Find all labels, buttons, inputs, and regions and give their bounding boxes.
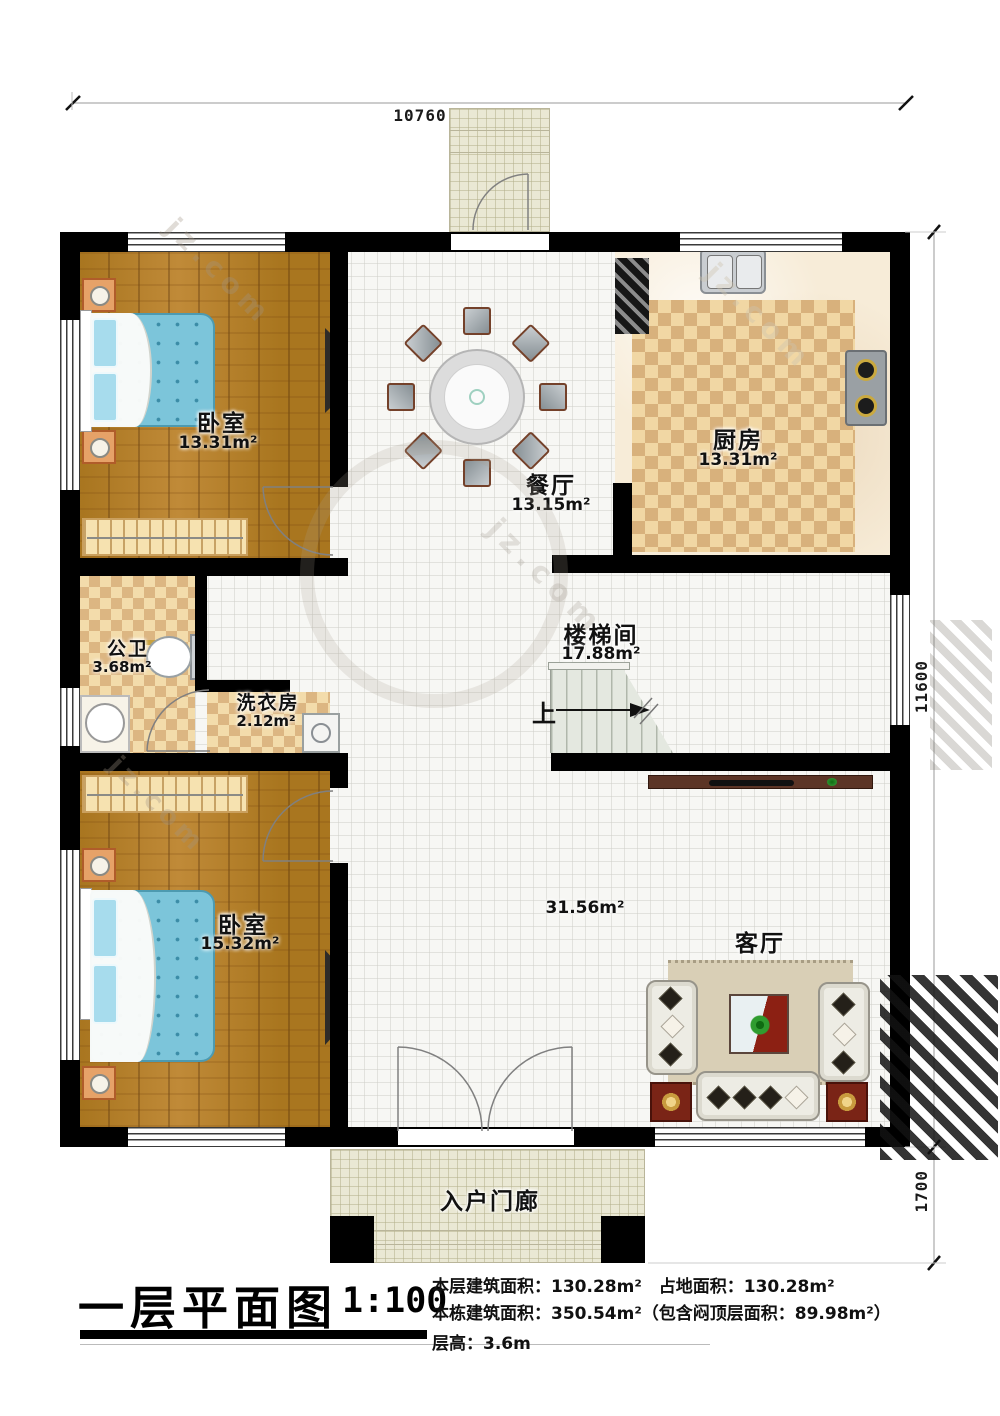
stair-up-label: 上 xyxy=(532,694,556,729)
stair-arrow-head xyxy=(630,703,650,717)
room-label-laundry: 洗衣房 xyxy=(236,688,299,715)
title-underline-thin xyxy=(80,1344,710,1345)
drawing-title: 一层平面图 xyxy=(78,1272,338,1338)
room-label-living: 客厅 xyxy=(735,924,785,958)
dim-porch-depth: 1700 xyxy=(912,1170,931,1213)
door-swing-bathroom xyxy=(147,690,210,751)
info-building-area: 本栋建筑面积：350.54m²（包含闷顶层面积：89.98m²） xyxy=(432,1299,891,1324)
dim-right-height: 11600 xyxy=(912,660,931,713)
door-swing-bedroom2 xyxy=(263,791,333,861)
room-area-bedroom1: 13.31m² xyxy=(179,433,258,453)
floor-plan-canvas: 卧室 13.31m² 餐厅 13.15m² 厨房 13.31m² 公卫 3.68… xyxy=(0,0,1000,1416)
door-swing-entrance-left xyxy=(398,1047,482,1131)
title-underline-thick xyxy=(80,1330,427,1339)
room-area-bathroom: 3.68m² xyxy=(92,658,151,676)
dim-top-width: 10760 xyxy=(393,106,446,125)
dim-ext-right xyxy=(648,232,946,1263)
room-area-living: 31.56m² xyxy=(546,898,625,918)
room-area-bedroom2: 15.32m² xyxy=(201,934,280,954)
room-area-kitchen: 13.31m² xyxy=(699,450,778,470)
door-swing-top-porch xyxy=(473,174,528,230)
info-floor-height: 层高：3.6m xyxy=(432,1329,531,1354)
room-area-stairhall: 17.88m² xyxy=(562,644,641,664)
door-swing-bedroom1 xyxy=(263,487,333,555)
room-area-dining: 13.15m² xyxy=(512,495,591,515)
room-area-laundry: 2.12m² xyxy=(236,712,295,730)
door-swing-entrance-right xyxy=(488,1047,572,1131)
info-floor-area: 本层建筑面积：130.28m² 占地面积：130.28m² xyxy=(432,1272,835,1297)
room-label-entry-porch: 入户门廊 xyxy=(440,1182,540,1216)
room-label-bathroom: 公卫 xyxy=(107,634,149,661)
